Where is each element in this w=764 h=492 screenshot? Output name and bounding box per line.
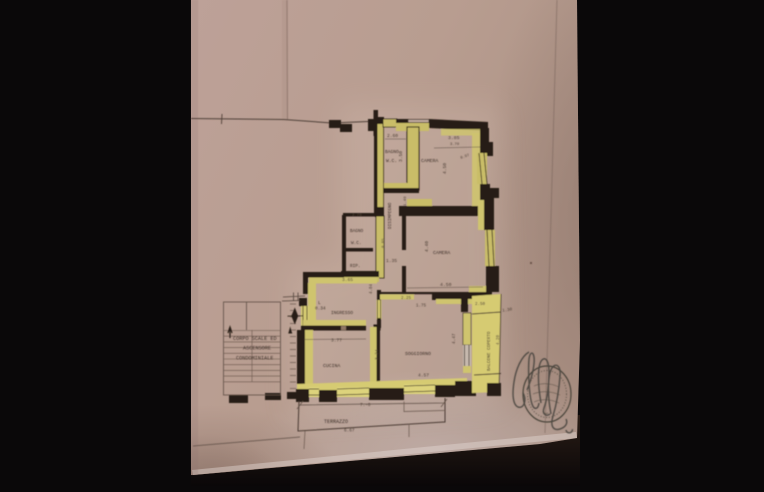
svg-text:4.04: 4.04 [370, 283, 374, 294]
svg-text:INGRESSO: INGRESSO [331, 310, 353, 316]
svg-text:3.65: 3.65 [342, 277, 353, 283]
svg-text:2.70: 2.70 [352, 214, 362, 218]
svg-text:3.24: 3.24 [375, 349, 380, 360]
svg-text:1.35: 1.35 [386, 258, 397, 264]
svg-text:1.75: 1.75 [416, 305, 427, 309]
svg-text:3.85: 3.85 [448, 135, 460, 141]
svg-text:CAMERA: CAMERA [421, 158, 438, 164]
svg-text:CUCINA: CUCINA [323, 363, 340, 369]
svg-text:TERRAZZO: TERRAZZO [324, 419, 348, 425]
svg-text:BAGNO: BAGNO [385, 149, 399, 155]
svg-text:4.50: 4.50 [442, 163, 448, 174]
svg-text:CAMERA: CAMERA [433, 250, 450, 256]
svg-text:6.67: 6.67 [344, 429, 355, 434]
svg-text:SOGGIORNO: SOGGIORNO [405, 351, 431, 357]
svg-text:DISIMPEGNO: DISIMPEGNO [388, 202, 393, 229]
svg-text:7.-0: 7.-0 [360, 403, 371, 408]
svg-text:RIP.: RIP. [350, 264, 361, 269]
svg-text:L: L [318, 301, 321, 306]
svg-text:4.40: 4.40 [424, 241, 430, 252]
svg-text:ASCENSORE: ASCENSORE [243, 346, 271, 352]
svg-text:BAGNO: BAGNO [350, 229, 364, 234]
svg-text:2.50: 2.50 [475, 303, 486, 307]
svg-text:0.34: 0.34 [315, 307, 326, 312]
svg-text:0.85: 0.85 [382, 238, 386, 248]
svg-text:W.C.: W.C. [386, 158, 397, 164]
svg-text:4.47: 4.47 [452, 333, 457, 344]
svg-text:CONDOMINIALE: CONDOMINIALE [236, 356, 273, 362]
svg-text:4.57: 4.57 [418, 373, 429, 379]
svg-text:3.77: 3.77 [331, 338, 342, 344]
svg-text:3.50: 3.50 [398, 151, 404, 162]
svg-text:CORPO SCALE ED: CORPO SCALE ED [233, 336, 277, 342]
svg-text:BALCONE COPERTO: BALCONE COPERTO [487, 331, 492, 371]
svg-text:2.60: 2.60 [387, 133, 398, 139]
svg-text:4.50: 4.50 [440, 282, 452, 288]
svg-text:3.70: 3.70 [450, 143, 460, 147]
svg-text:1.40: 1.40 [404, 196, 408, 206]
svg-text:4.20: 4.20 [497, 334, 501, 345]
svg-text:2.25: 2.25 [401, 297, 412, 301]
svg-text:W.C.: W.C. [351, 241, 362, 246]
